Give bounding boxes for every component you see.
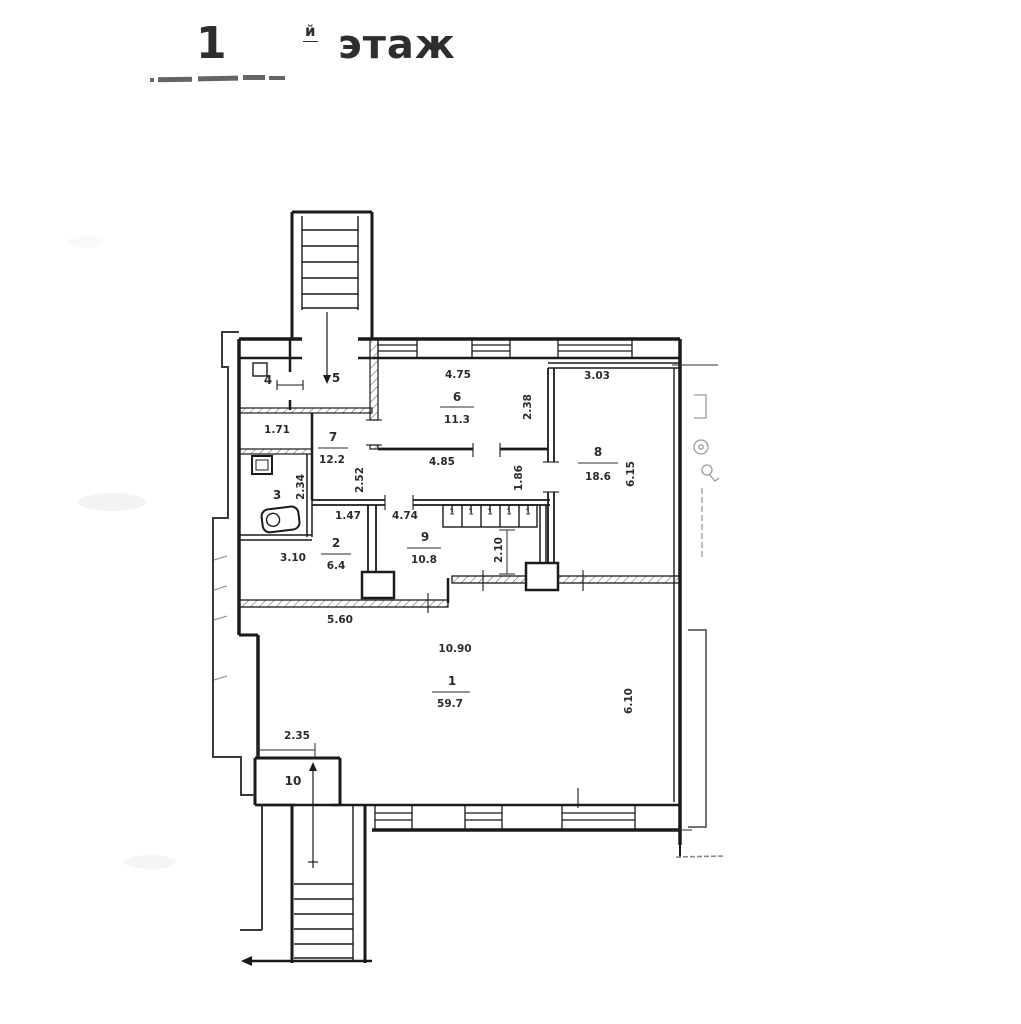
fixtures	[252, 363, 300, 533]
closet-cell-mark: 1	[449, 508, 454, 517]
room-4-number: 4	[264, 374, 272, 386]
window-bottom-2	[465, 805, 502, 830]
dim-room6-width: 4.75	[445, 370, 471, 381]
stair-treads-top	[302, 230, 358, 308]
closet-cell-mark: 1	[506, 508, 511, 517]
room-3-number: 3	[273, 489, 281, 501]
scan-noise	[68, 236, 176, 869]
column-2	[526, 563, 558, 590]
room-8-area: 18.6	[585, 472, 611, 483]
floor-number: 1	[196, 18, 227, 69]
room-6-number: 6	[453, 391, 461, 403]
dim-room8-width: 3.03	[584, 371, 610, 382]
room-6-fraction-line	[440, 407, 474, 408]
faded-annotation-glyphs	[694, 395, 719, 560]
dim-corridor-right-depth: 1.86	[514, 465, 525, 491]
room-1-area: 59.7	[437, 699, 463, 710]
window-top-3	[558, 339, 632, 358]
room-10-number: 10	[285, 775, 302, 787]
dim-room9-width: 4.74	[392, 511, 418, 522]
room-1-number: 1	[448, 675, 456, 687]
room-2-fraction-line	[321, 554, 351, 555]
toilet-symbol	[261, 506, 301, 533]
floor-number-suffix: й	[303, 22, 318, 42]
window-bottom-3	[562, 805, 635, 830]
room-7-area: 12.2	[319, 455, 345, 466]
dimension-lines	[258, 365, 718, 830]
dim-passage-width: 1.47	[335, 511, 361, 522]
closet-cell-mark: 1	[468, 508, 473, 517]
room-1-fraction-line	[432, 692, 470, 693]
windows	[375, 339, 635, 830]
room-5-number: 5	[332, 372, 340, 384]
dim-room2-width: 3.10	[280, 553, 306, 564]
room-8-fraction-line	[578, 463, 618, 464]
dim-corridor-width: 4.85	[429, 457, 455, 468]
bottom-wall-arrowhead	[241, 956, 252, 966]
dim-room8-depth: 6.15	[626, 461, 637, 487]
room-9-number: 9	[421, 531, 429, 543]
dim-niche-width: 1.71	[264, 425, 290, 436]
room-7-fraction-line	[318, 448, 348, 449]
dim-hall-upper-width: 5.60	[327, 615, 353, 626]
stair-direction-arrow-bottom	[309, 762, 317, 771]
closet-cell-mark: 1	[525, 508, 530, 517]
closet-cell-mark: 1	[487, 508, 492, 517]
room-2-number: 2	[332, 537, 340, 549]
stair-direction-arrow-top	[323, 375, 331, 384]
dim-hall-width: 10.90	[438, 644, 471, 655]
room-9-fraction-line	[407, 548, 441, 549]
dim-wc-depth: 2.34	[296, 474, 307, 500]
room-2-area: 6.4	[327, 561, 346, 572]
window-top-2	[472, 339, 510, 358]
room-8-number: 8	[594, 446, 602, 458]
room-9-area: 10.8	[411, 555, 437, 566]
dim-room9-opening-depth: 2.10	[494, 537, 505, 563]
title-underline-smudge	[150, 75, 285, 82]
sink-symbol-room-3	[252, 456, 272, 474]
stair-treads-bottom	[294, 884, 353, 958]
staircase-bottom	[241, 758, 372, 966]
right-side-marks	[676, 395, 724, 857]
dim-room6-depth: 2.38	[523, 394, 534, 420]
room-6-area: 11.3	[444, 415, 470, 426]
room-7-number: 7	[329, 431, 337, 443]
column-1	[362, 572, 394, 598]
floor-plan-page: 1 й этаж 4.75 6 11.3 2.38 3.03 8 18.6 6.…	[0, 0, 1021, 1024]
window-bottom-1	[375, 805, 412, 830]
dim-entrance-width: 2.35	[284, 731, 310, 742]
dim-corridor-depth: 2.52	[355, 467, 366, 493]
floor-word: этаж	[338, 22, 456, 68]
window-top-1	[378, 339, 417, 358]
dim-hall-depth: 6.10	[624, 688, 635, 714]
